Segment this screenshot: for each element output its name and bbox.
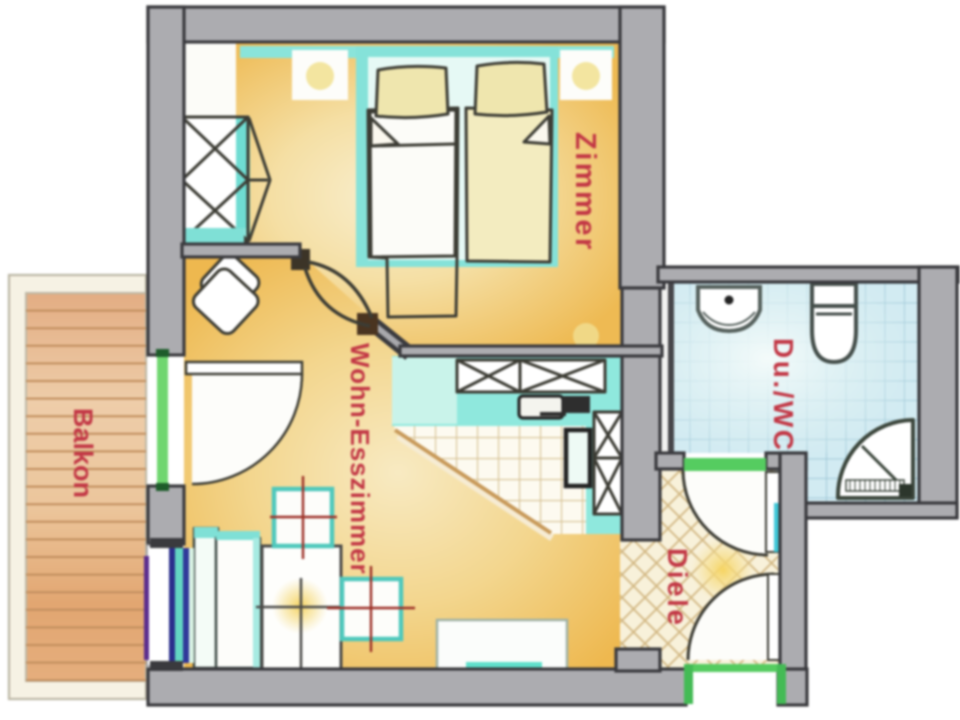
svg-text:Zimmer: Zimmer — [569, 132, 601, 252]
svg-text:Wohn-Esszimmer: Wohn-Esszimmer — [345, 343, 375, 575]
svg-text:Diele: Diele — [662, 548, 693, 627]
svg-text:Du./WC: Du./WC — [768, 338, 799, 453]
svg-text:Balkon: Balkon — [68, 408, 98, 498]
